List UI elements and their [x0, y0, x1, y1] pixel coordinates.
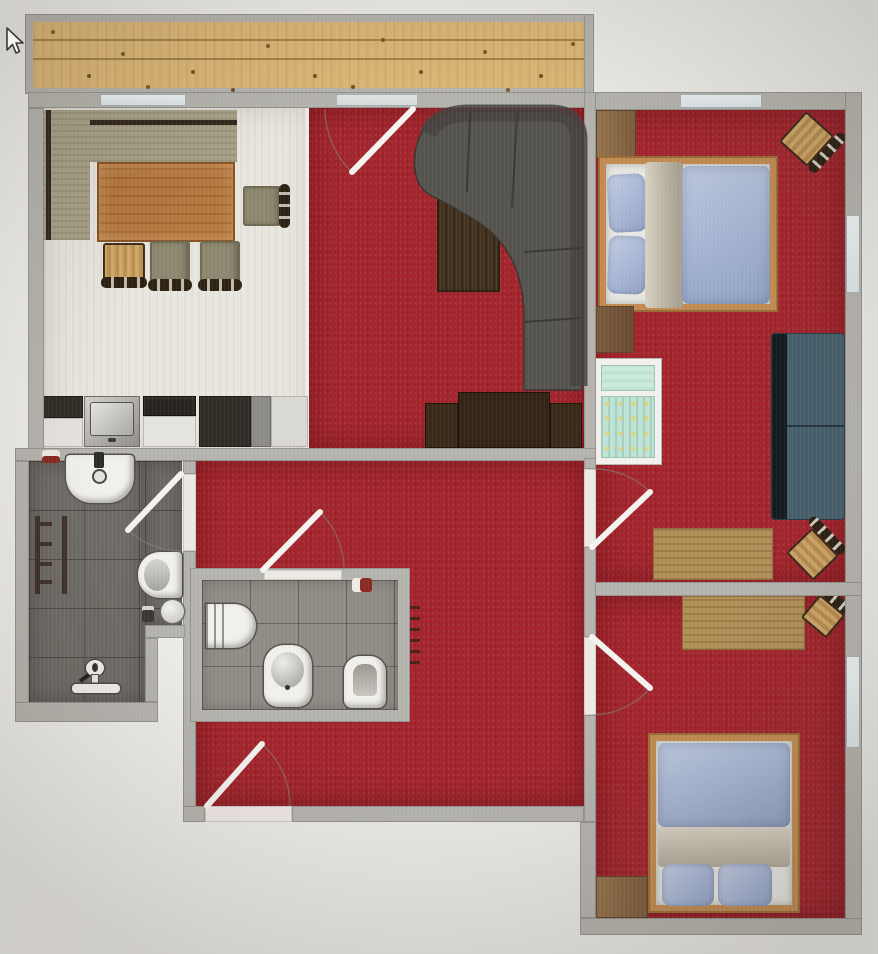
shower-tray[interactable]: [206, 604, 256, 648]
dining-chair-b[interactable]: [200, 241, 240, 283]
window-kitchen: [100, 94, 186, 106]
wall-segment: [584, 458, 596, 469]
folded-blanket: [645, 162, 683, 308]
soap-dish[interactable]: [352, 578, 372, 592]
tv-sideboard-wing[interactable]: [550, 403, 582, 448]
double-bed[interactable]: [598, 156, 778, 312]
wc-toilet[interactable]: [344, 656, 386, 708]
door-threshold: [183, 474, 196, 551]
wall-segment: [584, 715, 596, 822]
shower-head-center: [92, 663, 98, 672]
wall-bedrooms-divider: [584, 582, 862, 596]
bed-pillow: [607, 173, 648, 233]
wood-knots: [51, 30, 55, 34]
window-bedroom1-right: [846, 215, 860, 293]
bidet-drain: [285, 685, 290, 690]
dining-chair-a[interactable]: [150, 241, 190, 283]
dining-table[interactable]: [97, 162, 235, 242]
sink-faucet: [108, 438, 116, 442]
tv-sideboard-wing[interactable]: [425, 403, 458, 448]
wardrobe-bedroom2[interactable]: [596, 876, 648, 918]
window-bedroom1-top: [680, 94, 762, 108]
bed-pillow: [718, 864, 772, 906]
cooktop[interactable]: [143, 396, 196, 416]
radiator-rung: [40, 522, 52, 526]
basin-faucet: [94, 452, 104, 468]
wall-bathroom-left: [15, 461, 29, 722]
floor-plan-canvas: [0, 0, 878, 954]
bath-mixer[interactable]: [72, 684, 120, 693]
radiator-rung: [40, 580, 52, 584]
chair-backrest: [279, 184, 290, 228]
crib[interactable]: [594, 358, 662, 465]
single-bed[interactable]: [648, 733, 800, 913]
wall-left: [28, 108, 44, 458]
window-bedroom2-right: [846, 656, 860, 748]
bathroom-toilet[interactable]: [138, 552, 182, 598]
door-threshold: [264, 570, 342, 580]
folded-blanket: [658, 827, 790, 867]
wall-balcony-end: [584, 14, 594, 94]
wall-segment: [183, 461, 196, 474]
wall-segment: [584, 547, 596, 637]
desk-bedroom2[interactable]: [682, 596, 805, 650]
toilet-bowl: [144, 559, 170, 591]
wall-living-bedroom1: [584, 92, 596, 458]
wall-bedroom2-left: [580, 822, 596, 918]
sink-basin: [90, 402, 134, 436]
plank-line: [33, 39, 585, 41]
wall-segment: [183, 806, 205, 822]
wall-bedroom2-bottom: [580, 918, 862, 935]
washbasin[interactable]: [66, 455, 134, 503]
wall-bathroom-bottom: [15, 702, 158, 722]
round-stool[interactable]: [161, 600, 184, 623]
radiator-rung: [40, 562, 52, 566]
sofa-bedroom1[interactable]: [771, 333, 845, 520]
chair-backrest: [148, 279, 192, 291]
entry-threshold: [205, 806, 292, 822]
crib-mattress: [601, 396, 655, 458]
toilet-bowl: [353, 664, 377, 696]
radiator-rung: [40, 542, 52, 546]
bed-duvet: [682, 166, 770, 304]
corner-bench-side[interactable]: [36, 110, 90, 240]
wardrobe-bedroom1[interactable]: [596, 110, 636, 158]
kitchen-cabinet[interactable]: [143, 416, 196, 447]
soap-dish[interactable]: [42, 450, 60, 463]
tv-sideboard[interactable]: [458, 392, 550, 448]
balcony-door-opening: [336, 94, 418, 106]
bed-pillow: [662, 864, 714, 906]
crib-pillow: [601, 365, 655, 391]
door-threshold: [584, 637, 596, 715]
wall-bathroom-step: [145, 638, 158, 702]
kitchen-cabinet-light[interactable]: [271, 396, 308, 447]
bidet-bowl: [271, 652, 304, 688]
plank-line: [33, 58, 585, 60]
basin-drain: [94, 471, 105, 482]
bidet[interactable]: [264, 645, 312, 707]
wall-bathroom-step: [145, 625, 185, 638]
balcony-deck[interactable]: [33, 22, 585, 88]
dining-chair-right[interactable]: [243, 186, 281, 226]
bed-duvet: [658, 743, 790, 827]
chair-backrest: [101, 277, 147, 288]
mouse-cursor: [4, 26, 26, 56]
desk-bedroom1[interactable]: [653, 528, 773, 580]
door-threshold: [584, 469, 596, 547]
chair-backrest: [198, 279, 242, 291]
bed-pillow: [607, 235, 647, 294]
toilet-roll-holder[interactable]: [142, 606, 154, 622]
towel-radiator[interactable]: [35, 516, 67, 594]
coffee-table[interactable]: [437, 188, 500, 292]
wall-hallway-bottom: [292, 806, 584, 822]
kitchen-sink[interactable]: [84, 396, 140, 447]
tall-cabinet[interactable]: [199, 396, 251, 447]
bench-rail: [46, 110, 51, 240]
dresser-bedroom1[interactable]: [596, 306, 634, 353]
appliance-unit[interactable]: [251, 396, 271, 447]
sofa-cushion-split: [787, 425, 845, 427]
